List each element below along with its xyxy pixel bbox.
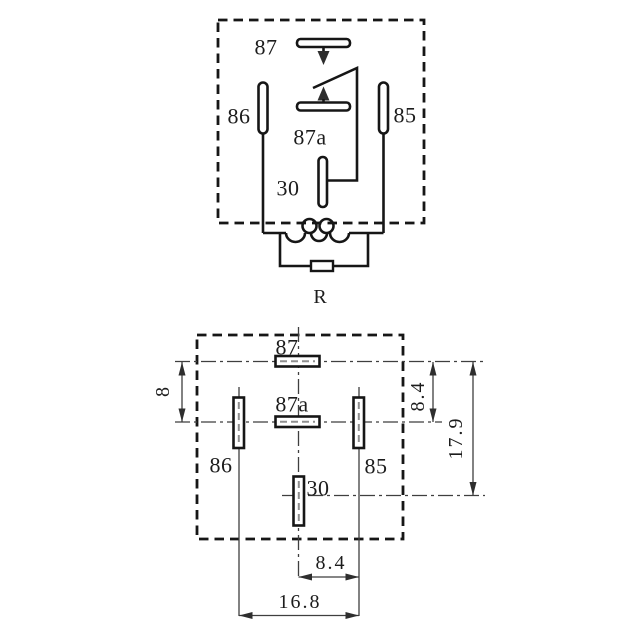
schematic-pin-85-terminal [379,83,388,134]
schematic-pin-30-terminal [319,157,328,207]
dim-84r-value: 8.4 [407,381,429,412]
schematic-label-87a: 87a [293,125,326,150]
coil-loop-right [320,219,334,233]
resistor-wire-right [333,233,368,266]
footprint-pin-85-slot [354,398,365,449]
footprint-diagram: 87 87a 86 85 30 8 8.4 [152,327,485,619]
dim-84b-arrow-right-icon [346,574,360,581]
schematic-pin-86-terminal [259,83,268,134]
dimension-row-offset-left: 8 [152,362,186,422]
dimension-pin-half-spacing: 8.4 [299,552,360,581]
dimension-pin-full-spacing: 16.8 [239,591,359,619]
arrow-up-icon [318,87,330,101]
dim-8-arrow-down-icon [179,409,186,423]
footprint-label-85: 85 [365,454,388,479]
dim-84b-value: 8.4 [316,552,347,574]
dimension-total-height: 17.9 [445,362,477,496]
dim-84b-arrow-left-icon [299,574,313,581]
dim-168-arrow-right-icon [346,612,360,619]
dim-84r-arrow-down-icon [430,409,437,423]
relay-diagram-page: 87 86 85 87a 30 R [0,0,640,640]
resistor-symbol [311,261,333,271]
footprint-pin-30-slot [294,477,305,526]
dim-168-value: 16.8 [279,591,322,613]
dim-179-arrow-up-icon [470,362,477,376]
schematic-label-30: 30 [277,176,300,201]
dim-8-arrow-up-icon [179,362,186,376]
coil-loop-left [303,219,317,233]
footprint-pin-86-slot [234,398,245,449]
footprint-label-30: 30 [307,476,330,501]
dim-168-arrow-left-icon [239,612,253,619]
dim-84r-arrow-up-icon [430,362,437,376]
schematic-circuit-diagram: 87 86 85 87a 30 R [218,20,424,308]
relay-diagrams-canvas: 87 86 85 87a 30 R [0,0,640,640]
dim-179-value: 17.9 [445,417,467,460]
schematic-label-resistor: R [313,286,327,308]
footprint-label-87a: 87a [275,392,308,417]
dim-179-arrow-down-icon [470,482,477,496]
schematic-label-87: 87 [255,35,278,60]
coil-lower-arcs [286,233,349,242]
dimension-row-offset-right: 8.4 [407,362,437,422]
dim-8-value: 8 [152,385,174,397]
schematic-terminal-87a-contact [297,103,350,111]
schematic-terminal-87-contact [297,39,350,47]
footprint-label-86: 86 [210,453,233,478]
arrow-down-icon [318,51,330,65]
resistor-wire-left [280,233,311,266]
schematic-label-85: 85 [394,103,417,128]
schematic-label-86: 86 [228,104,251,129]
footprint-label-87: 87 [276,335,299,360]
footprint-pin-87a-slot [276,417,320,428]
